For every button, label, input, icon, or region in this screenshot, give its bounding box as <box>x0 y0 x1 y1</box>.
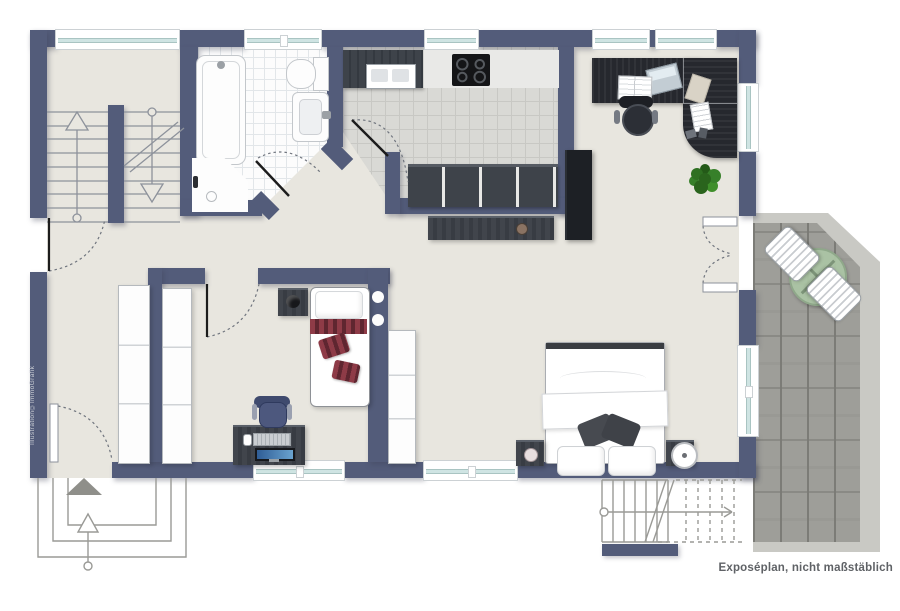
bed-footboard <box>546 343 664 349</box>
washbasin-faucet <box>322 111 331 119</box>
laptop-screen <box>649 66 676 81</box>
bathtub-basin <box>202 61 240 159</box>
mouse <box>243 434 252 446</box>
wall-right <box>739 435 756 478</box>
wall-right <box>739 150 756 216</box>
sideboard-bowl <box>516 223 528 235</box>
clock-center <box>682 453 687 458</box>
window-office-2 <box>655 29 717 50</box>
tall-cabinet <box>565 150 592 240</box>
kids-blanket-band <box>310 319 367 334</box>
hall-wardrobe <box>118 285 150 464</box>
shower-fitting <box>193 176 198 188</box>
wall-kitchen-door-stub <box>385 152 400 214</box>
wall-bath-kitchen <box>327 47 343 147</box>
keyboard <box>253 433 291 446</box>
window-bathroom <box>244 29 322 50</box>
toilet-bowl <box>286 59 316 89</box>
bed-pillow <box>608 446 656 476</box>
window-office-right <box>737 83 759 152</box>
wall-top <box>320 30 424 47</box>
chair-armrest <box>652 110 658 124</box>
window-kitchen <box>424 29 479 50</box>
wall-bottom <box>112 462 253 478</box>
illustrator-watermark: Illustration©ImmoGrafik <box>29 340 41 470</box>
chair-armrest <box>287 404 292 420</box>
wall-kidsroom-left <box>148 268 162 462</box>
entrance-up-arrow <box>78 514 98 532</box>
chair-seat <box>622 104 654 136</box>
kids-nightstand <box>278 288 308 316</box>
exterior-stairs <box>600 480 742 542</box>
kidsroom-wardrobe <box>162 288 192 464</box>
wall-left <box>30 30 47 218</box>
wall-exterior-stair-stub <box>602 544 678 556</box>
chair-seat <box>259 402 287 428</box>
window-bedroom <box>423 460 518 481</box>
window-office-1 <box>592 29 650 50</box>
chair-armrest <box>614 110 620 124</box>
wall-right <box>739 30 756 83</box>
wall-stair-spine <box>108 105 124 223</box>
sink-bowl <box>392 69 409 82</box>
entrance-steps <box>38 478 186 570</box>
exterior-stair-arrow <box>724 507 732 517</box>
window-stairwell <box>55 29 180 50</box>
floor-plan-canvas: Illustration©ImmoGrafik Exposéplan, nich… <box>0 0 900 611</box>
kids-pillow <box>315 291 363 319</box>
kitchen-sink <box>366 64 416 89</box>
window-bedroom-right <box>737 345 759 437</box>
office-chair <box>616 96 656 138</box>
exterior-stair-break <box>653 480 674 542</box>
kids-nightstand-item <box>286 295 300 308</box>
bedroom-wardrobe <box>388 330 416 464</box>
bed-pillow <box>557 446 605 476</box>
shower-drain <box>206 191 217 202</box>
alarm-clock <box>671 442 698 469</box>
kids-desk <box>233 425 305 465</box>
wall-bottom <box>343 462 423 478</box>
bed-fold-line <box>560 371 646 386</box>
kitchen-counter-light <box>423 50 559 88</box>
entrance-direction-marker <box>66 478 102 495</box>
plant <box>699 173 711 185</box>
washbasin-bowl <box>299 99 322 135</box>
wall-top <box>178 30 244 47</box>
kitchen-base-cabinets <box>408 164 558 207</box>
exterior-stair-break <box>645 480 666 542</box>
washbasin <box>292 92 329 142</box>
nightstand-item <box>524 448 538 462</box>
wall-kidsroom-right <box>368 268 388 462</box>
exterior-stair-guide-start <box>600 508 608 516</box>
wall-top <box>477 30 592 47</box>
bathtub-faucet <box>217 61 225 69</box>
desk-small-item <box>698 127 708 138</box>
entrance-threshold-floor <box>47 462 112 478</box>
plan-caption: Exposéplan, nicht maßstäblich <box>600 562 893 574</box>
bathtub <box>196 55 246 165</box>
sideboard <box>428 216 554 240</box>
monitor-stand <box>269 459 279 462</box>
cooktop <box>452 54 490 86</box>
kids-desk-chair <box>252 396 292 430</box>
nightstand-left <box>516 440 544 466</box>
sink-bowl <box>371 69 388 82</box>
wall-right <box>739 290 756 345</box>
chair-armrest <box>252 404 257 420</box>
